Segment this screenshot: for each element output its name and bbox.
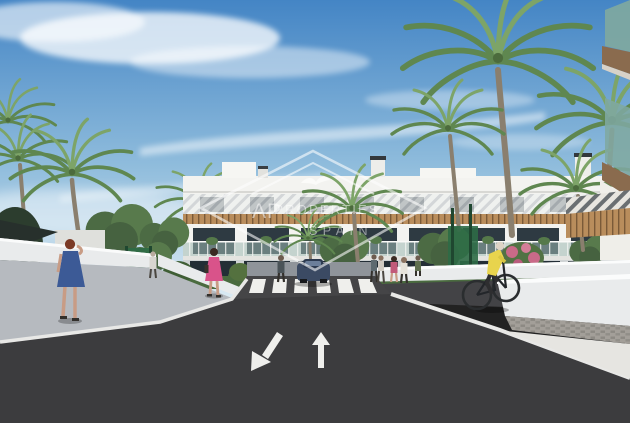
render-image: AP PROPERTIES SPAIN xyxy=(0,0,630,423)
watermark-line2: SPAIN xyxy=(309,224,373,238)
watermark-line1: PROPERTIES xyxy=(274,202,380,217)
